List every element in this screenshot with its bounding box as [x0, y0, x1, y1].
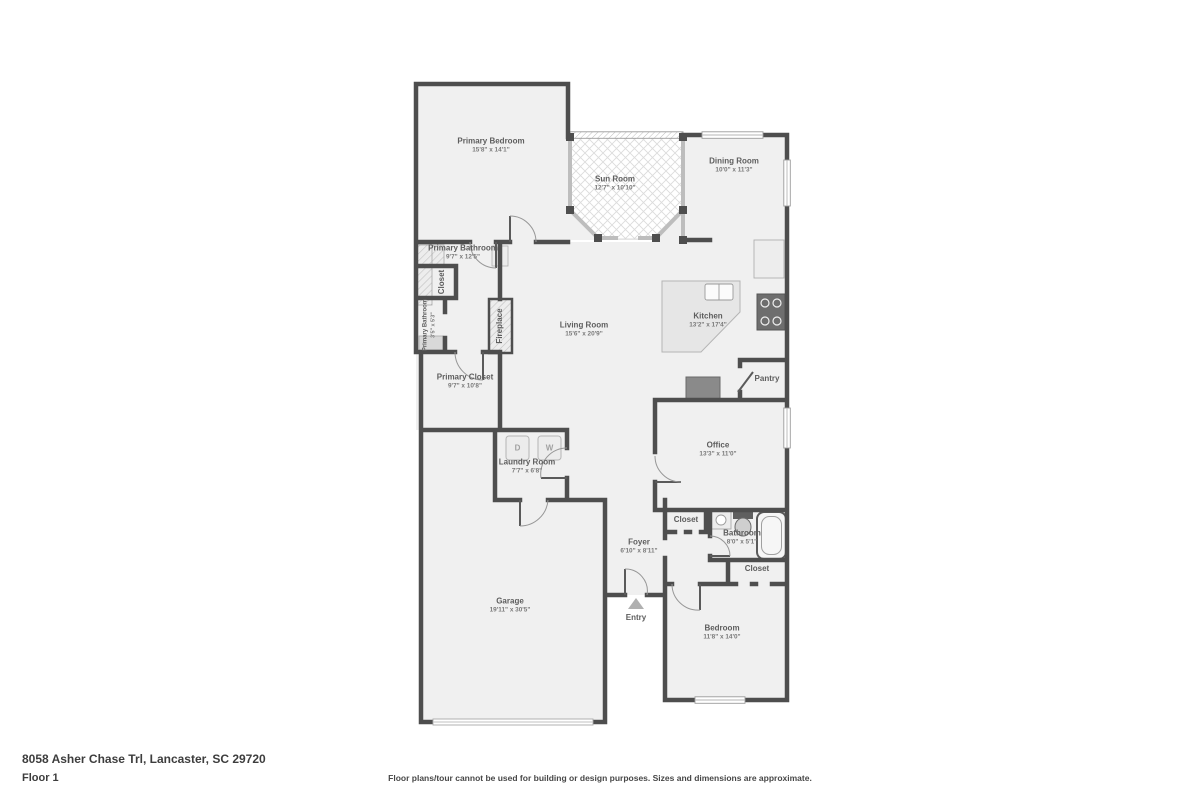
entry-arrow-icon — [628, 598, 644, 609]
room-label-primary-closet: Primary Closet9'7" x 10'8" — [437, 373, 493, 392]
room-label-garage: Garage19'11" x 30'5" — [490, 597, 531, 616]
garage-door — [433, 719, 593, 725]
room-label-dining-room: Dining Room10'0" x 11'3" — [709, 157, 759, 176]
room-label-bedroom: Bedroom11'8" x 14'0" — [703, 624, 740, 643]
floor-plan-canvas: Primary Bedroom15'8" x 14'1" Sun Room12'… — [0, 0, 1200, 800]
room-label-sun-room: Sun Room12'7" x 10'10" — [594, 175, 635, 194]
room-label-pantry: Pantry — [755, 374, 780, 384]
room-label-hall-closet: Closet — [674, 515, 698, 525]
room-label-entry: Entry — [626, 613, 646, 623]
dryer-label: D — [515, 444, 521, 453]
washer-label: W — [546, 444, 554, 453]
room-label-living-room: Living Room15'6" x 20'9" — [560, 321, 608, 340]
room-label-foyer: Foyer6'10" x 8'11" — [620, 538, 657, 557]
room-label-bathroom: Bathroom8'0" x 5'1" — [723, 529, 761, 548]
room-label-primary-closet-small: Closet — [437, 270, 447, 294]
room-label-primary-bedroom: Primary Bedroom15'8" x 14'1" — [457, 137, 524, 156]
floor-plan-drawing — [0, 0, 1200, 800]
property-address: 8058 Asher Chase Trl, Lancaster, SC 2972… — [22, 752, 266, 766]
room-label-bedroom-closet: Closet — [745, 564, 769, 574]
room-label-laundry-room: Laundry Room7'7" x 6'8" — [499, 458, 555, 477]
disclaimer-text: Floor plans/tour cannot be used for buil… — [388, 773, 812, 783]
room-label-kitchen: Kitchen13'2" x 17'4" — [689, 312, 727, 331]
room-label-primary-bathroom: Primary Bathroom9'7" x 12'5" — [428, 244, 498, 263]
room-label-primary-bathroom-small: Primary Bathroom3'5" x 5'3" — [423, 299, 438, 351]
room-label-fireplace: Fireplace — [495, 308, 505, 343]
floor-label: Floor 1 — [22, 772, 59, 784]
room-label-office: Office13'3" x 11'0" — [699, 441, 736, 460]
